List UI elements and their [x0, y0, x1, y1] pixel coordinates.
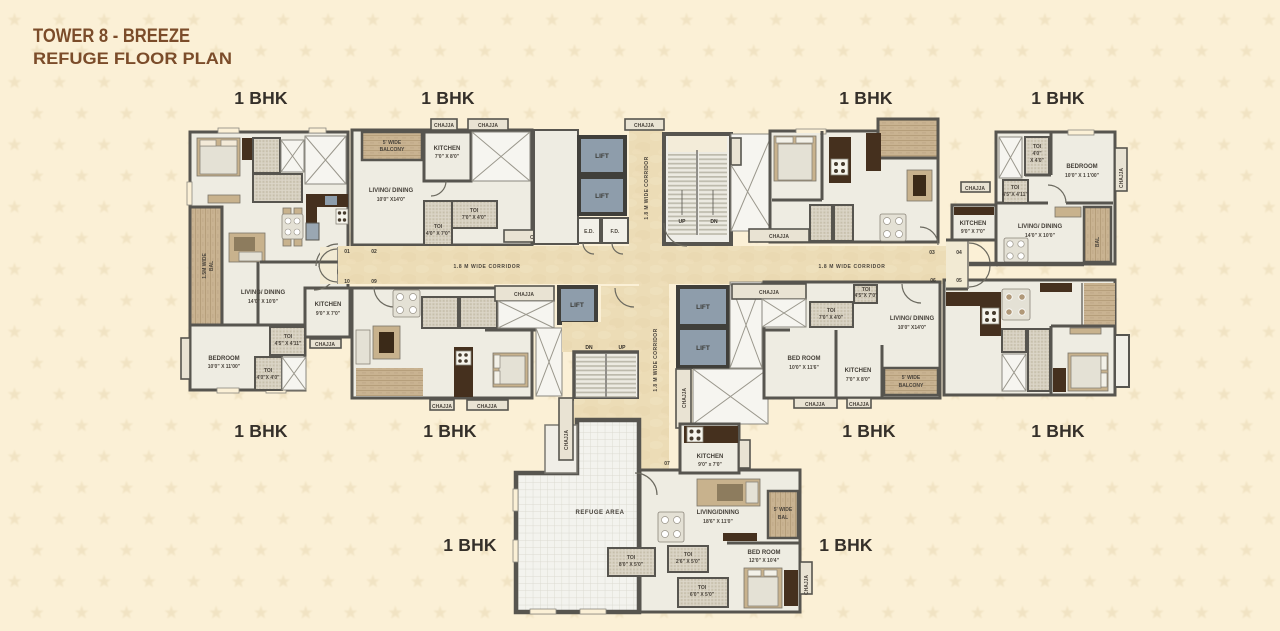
svg-text:10: 10 — [344, 279, 350, 285]
svg-text:1 BHK: 1 BHK — [1031, 421, 1085, 441]
svg-text:LIVING/ DINING: LIVING/ DINING — [369, 188, 414, 194]
svg-text:CHAJJA: CHAJJA — [759, 290, 779, 296]
svg-text:UP: UP — [679, 219, 687, 225]
svg-text:14'0" X 10'0": 14'0" X 10'0" — [248, 299, 279, 305]
svg-text:5' WIDE: 5' WIDE — [902, 375, 921, 381]
svg-text:X 4'0": X 4'0" — [1030, 158, 1044, 164]
svg-text:TOI: TOI — [1011, 185, 1020, 191]
svg-text:CHAJJA: CHAJJA — [634, 123, 654, 129]
svg-text:4'5"X 4'11": 4'5"X 4'11" — [1002, 192, 1028, 198]
svg-text:KITCHEN: KITCHEN — [315, 302, 342, 308]
svg-text:1 BHK: 1 BHK — [839, 88, 893, 108]
svg-text:UP: UP — [619, 345, 627, 351]
svg-text:KITCHEN: KITCHEN — [960, 221, 987, 227]
svg-text:01: 01 — [344, 249, 350, 255]
svg-text:12'0" X 10'4": 12'0" X 10'4" — [749, 558, 780, 564]
svg-text:TOI: TOI — [434, 224, 443, 230]
svg-text:CHAJJA: CHAJJA — [682, 388, 688, 408]
svg-text:07: 07 — [664, 461, 670, 467]
svg-text:REFUGE AREA: REFUGE AREA — [576, 510, 625, 516]
svg-text:10'0" X 11'6": 10'0" X 11'6" — [789, 365, 819, 371]
svg-text:TOI: TOI — [627, 555, 636, 561]
svg-text:10'0" X 11'00": 10'0" X 11'00" — [208, 364, 241, 370]
svg-text:F.D.: F.D. — [611, 229, 621, 235]
svg-text:10'0" X14'0": 10'0" X14'0" — [898, 325, 927, 331]
svg-text:1 BHK: 1 BHK — [819, 535, 873, 555]
svg-text:TOI: TOI — [284, 334, 293, 340]
svg-text:LIVING/ DINING: LIVING/ DINING — [1018, 224, 1063, 230]
svg-text:7'0" X 4'0": 7'0" X 4'0" — [819, 315, 844, 321]
svg-text:14'0" X 10'0": 14'0" X 10'0" — [1025, 233, 1056, 239]
svg-text:4'0": 4'0" — [1032, 151, 1042, 157]
svg-text:BALCONY: BALCONY — [899, 383, 924, 389]
svg-text:LIVING/ DINING: LIVING/ DINING — [241, 290, 286, 296]
svg-text:7'0" X 8'0": 7'0" X 8'0" — [435, 154, 460, 160]
svg-text:BAL: BAL — [209, 261, 215, 271]
svg-text:TOI: TOI — [1033, 144, 1042, 150]
svg-text:1.8 M WIDE CORRIDOR: 1.8 M WIDE CORRIDOR — [644, 156, 650, 219]
svg-text:TOI: TOI — [827, 308, 836, 314]
svg-text:1 BHK: 1 BHK — [234, 421, 288, 441]
svg-text:1.5M WIDE: 1.5M WIDE — [202, 253, 208, 279]
svg-text:E.D.: E.D. — [584, 229, 594, 235]
svg-text:KITCHEN: KITCHEN — [434, 146, 461, 152]
svg-text:REFUGE FLOOR PLAN: REFUGE FLOOR PLAN — [33, 49, 232, 68]
svg-text:DN: DN — [710, 219, 718, 225]
svg-text:4'0"X 4'0": 4'0"X 4'0" — [257, 375, 281, 381]
svg-text:2'6" X 5'0": 2'6" X 5'0" — [676, 559, 701, 565]
svg-text:05: 05 — [956, 278, 962, 284]
svg-text:CHAJJA: CHAJJA — [315, 342, 335, 348]
svg-text:CHAJJA: CHAJJA — [478, 123, 498, 129]
svg-text:1 BHK: 1 BHK — [234, 88, 288, 108]
svg-text:1.8 M WIDE CORRIDOR: 1.8 M WIDE CORRIDOR — [653, 328, 659, 391]
svg-text:LIFT: LIFT — [696, 304, 710, 311]
svg-text:CHAJJA: CHAJJA — [1119, 168, 1125, 188]
svg-text:BED ROOM: BED ROOM — [788, 356, 821, 362]
svg-text:TOWER 8 - BREEZE: TOWER 8 - BREEZE — [33, 26, 190, 47]
svg-text:TOI: TOI — [684, 552, 693, 558]
svg-text:LIVING/ DINING: LIVING/ DINING — [890, 316, 935, 322]
svg-text:10'0" X 1 1'00": 10'0" X 1 1'00" — [1065, 173, 1100, 179]
svg-text:BALCONY: BALCONY — [380, 147, 405, 153]
svg-text:CHAJJA: CHAJJA — [432, 404, 452, 410]
svg-text:BAL: BAL — [778, 515, 788, 521]
svg-text:1 BHK: 1 BHK — [1031, 88, 1085, 108]
svg-text:8'0" X 5'0": 8'0" X 5'0" — [619, 562, 644, 568]
svg-text:BEDROOM: BEDROOM — [208, 356, 239, 362]
svg-text:18'6" X 11'0": 18'6" X 11'0" — [703, 519, 733, 525]
svg-text:TOI: TOI — [698, 585, 707, 591]
svg-text:LIFT: LIFT — [570, 302, 584, 309]
svg-text:CHAJJA: CHAJJA — [804, 575, 810, 595]
svg-text:CHAJJA: CHAJJA — [965, 186, 985, 192]
svg-text:TOI: TOI — [264, 368, 273, 374]
svg-text:KITCHEN: KITCHEN — [697, 454, 724, 460]
svg-text:10'0" X14'0": 10'0" X14'0" — [377, 197, 406, 203]
svg-text:1.8 M WIDE CORRIDOR: 1.8 M WIDE CORRIDOR — [454, 264, 521, 270]
svg-text:4'0" X 7'0": 4'0" X 7'0" — [426, 231, 451, 237]
svg-text:02: 02 — [371, 249, 377, 255]
svg-text:5' WIDE: 5' WIDE — [774, 507, 793, 513]
svg-text:9'0" X 7'0": 9'0" X 7'0" — [961, 229, 986, 235]
svg-text:CHAJJA: CHAJJA — [849, 402, 869, 408]
svg-text:1 BHK: 1 BHK — [842, 421, 896, 441]
svg-text:LIFT: LIFT — [595, 153, 609, 160]
svg-text:1 BHK: 1 BHK — [423, 421, 477, 441]
svg-text:LIFT: LIFT — [595, 193, 609, 200]
svg-text:CHAJJA: CHAJJA — [769, 234, 789, 240]
svg-text:CHAJJA: CHAJJA — [564, 430, 570, 450]
svg-text:LIVING/DINING: LIVING/DINING — [697, 510, 740, 516]
svg-text:04: 04 — [956, 250, 962, 256]
svg-text:09: 09 — [371, 279, 377, 285]
svg-text:7'0" X 8'0": 7'0" X 8'0" — [846, 377, 871, 383]
svg-text:9'0" x 7'0": 9'0" x 7'0" — [698, 462, 722, 468]
svg-text:CHAJJA: CHAJJA — [434, 123, 454, 129]
svg-text:06: 06 — [930, 278, 936, 284]
svg-text:7'0" X 4'0": 7'0" X 4'0" — [462, 215, 487, 221]
svg-text:CHAJJA: CHAJJA — [477, 404, 497, 410]
svg-text:BED ROOM: BED ROOM — [748, 550, 781, 556]
svg-text:BEDROOM: BEDROOM — [1066, 164, 1097, 170]
svg-text:TOI: TOI — [470, 208, 479, 214]
svg-text:1.8 M WIDE CORRIDOR: 1.8 M WIDE CORRIDOR — [819, 264, 886, 270]
svg-text:BAL: BAL — [1095, 237, 1101, 247]
svg-text:03: 03 — [929, 250, 935, 256]
svg-text:CHAJJA: CHAJJA — [805, 402, 825, 408]
svg-text:DN: DN — [585, 345, 593, 351]
svg-text:CHAJJA: CHAJJA — [514, 292, 534, 298]
svg-text:1 BHK: 1 BHK — [443, 535, 497, 555]
svg-text:4'5"X 7'0": 4'5"X 7'0" — [855, 293, 879, 299]
svg-text:4'5" X 4'11": 4'5" X 4'11" — [275, 341, 302, 347]
svg-text:5' WIDE: 5' WIDE — [383, 140, 402, 146]
svg-text:6'0" X 5'0": 6'0" X 5'0" — [690, 592, 715, 598]
svg-text:LIFT: LIFT — [696, 345, 710, 352]
svg-text:1 BHK: 1 BHK — [421, 88, 475, 108]
svg-text:9'0" X 7'0": 9'0" X 7'0" — [316, 311, 341, 317]
svg-text:KITCHEN: KITCHEN — [845, 368, 872, 374]
